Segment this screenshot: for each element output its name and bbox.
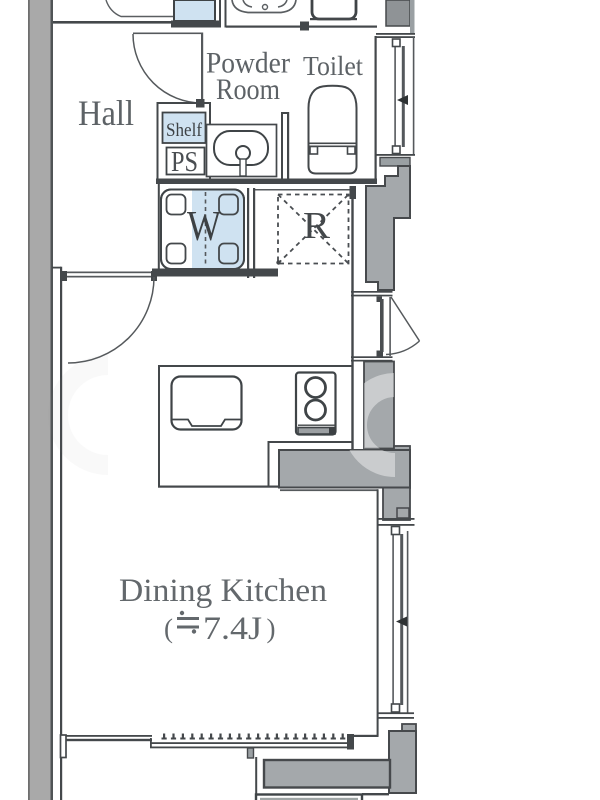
svg-text:Shelf: Shelf [166, 120, 203, 141]
svg-text:(: ( [164, 614, 173, 644]
svg-text:W: W [187, 204, 221, 250]
svg-text:R: R [303, 205, 331, 247]
svg-text:7.4J: 7.4J [203, 611, 262, 647]
svg-text:): ) [267, 614, 276, 644]
svg-text:PS: PS [171, 147, 198, 178]
svg-text:Hall: Hall [78, 93, 134, 133]
svg-text:Dining Kitchen: Dining Kitchen [119, 573, 327, 609]
svg-text:Room: Room [216, 73, 280, 106]
svg-text:Toilet: Toilet [303, 51, 363, 81]
